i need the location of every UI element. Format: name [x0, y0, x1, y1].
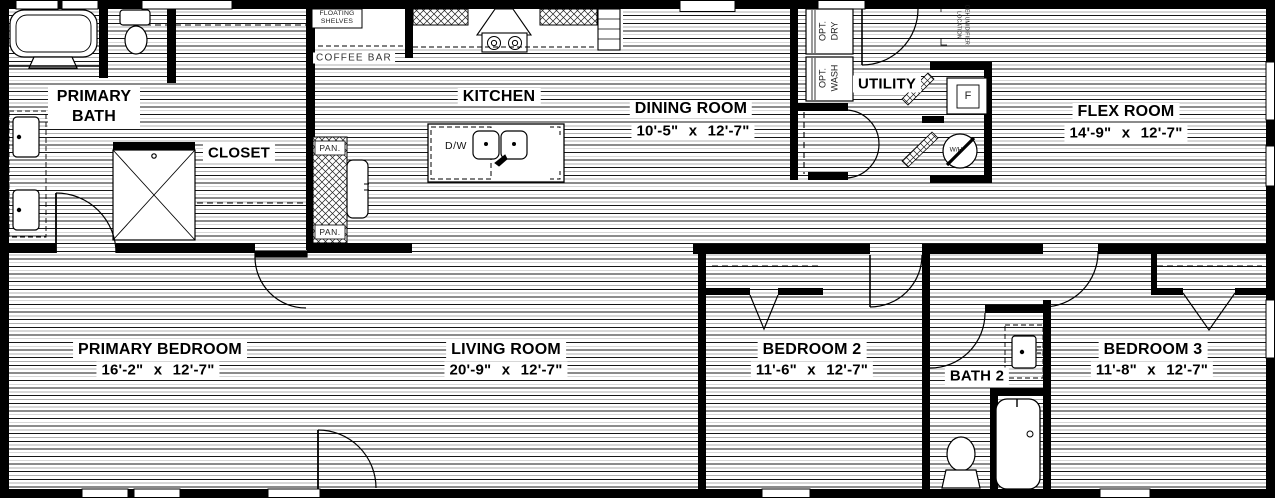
door-arc	[862, 9, 918, 65]
angled-door-icon	[902, 132, 938, 167]
range-icon	[482, 33, 527, 52]
dehumidifier-label-line1: DEHUMIDIFIER	[963, 5, 970, 45]
door-arc	[845, 144, 879, 178]
toilet-tank-icon	[120, 10, 150, 25]
bathtub-icon	[996, 399, 1040, 489]
dishwasher-label: D/W	[445, 140, 467, 152]
room-label-bedroom-3: BEDROOM 3	[1099, 341, 1208, 359]
room-label-primary-bath: PRIMARY BATH	[48, 87, 140, 127]
furnace-label: F	[965, 90, 972, 102]
pantry-label-top: PAN.	[319, 143, 340, 153]
floorplan-drawing	[0, 0, 1275, 498]
floating-shelves-label-line2: SHELVES	[321, 18, 353, 26]
room-label-flex-room: FLEX ROOM	[1073, 103, 1180, 121]
door-arc	[1043, 252, 1098, 307]
opt-dry-label-line1: OPT.	[817, 21, 828, 41]
dehumidifier-label-line2: LOCATION	[955, 11, 962, 39]
door-arc	[56, 193, 116, 253]
door-arc	[930, 313, 985, 368]
opt-dry-label-line2: DRY	[829, 22, 840, 41]
bifold-door-icon	[750, 295, 778, 329]
toilet-icon	[125, 26, 147, 54]
walls	[0, 0, 1275, 498]
room-dims-flex-room: 14'-9" x 12'-7"	[1064, 125, 1187, 142]
room-label-closet: CLOSET	[203, 145, 275, 162]
room-dims-bedroom-2: 11'-6" x 12'-7"	[751, 362, 873, 379]
door-leaf	[255, 251, 307, 257]
room-dims-bedroom-3: 11'-8" x 12'-7"	[1091, 362, 1213, 379]
room-label-dining-room: DINING ROOM	[630, 100, 752, 118]
room-dims-living-room: 20'-9" x 12'-7"	[444, 362, 567, 379]
door-arc	[870, 255, 922, 307]
opt-wash-label-line2: WASH	[829, 65, 840, 92]
cabinet-icon	[598, 9, 620, 50]
room-label-primary-bedroom: PRIMARY BEDROOM	[73, 341, 247, 359]
front-door-opening	[268, 489, 320, 498]
door-arc	[255, 257, 306, 308]
water-heater-label: W/H	[950, 147, 963, 154]
room-label-utility: UTILITY	[853, 76, 921, 93]
counter-icon	[540, 9, 597, 25]
room-dims-primary-bedroom: 16'-2" x 12'-7"	[96, 362, 219, 379]
toilet-base	[942, 470, 980, 488]
coffee-bar-label: COFFEE BAR	[313, 53, 395, 64]
toilet-icon	[947, 437, 975, 471]
counter-icon	[413, 9, 468, 25]
refrigerator-icon	[347, 160, 368, 218]
room-dims-dining-room: 10'-5" x 12'-7"	[631, 123, 754, 140]
opt-wash-label-line1: OPT.	[817, 68, 828, 88]
room-label-living-room: LIVING ROOM	[446, 341, 566, 359]
pantry-label-bottom: PAN.	[319, 227, 340, 237]
door-arc	[845, 110, 879, 144]
room-label-bedroom-2: BEDROOM 2	[758, 341, 867, 359]
room-label-bath-2: BATH 2	[945, 368, 1009, 385]
room-label-kitchen: KITCHEN	[458, 88, 541, 106]
floorplan-diagram: PRIMARY BATH CLOSET KITCHEN DINING ROOM …	[0, 0, 1275, 498]
door-arc	[318, 430, 376, 488]
bifold-door-icon	[1183, 293, 1235, 330]
